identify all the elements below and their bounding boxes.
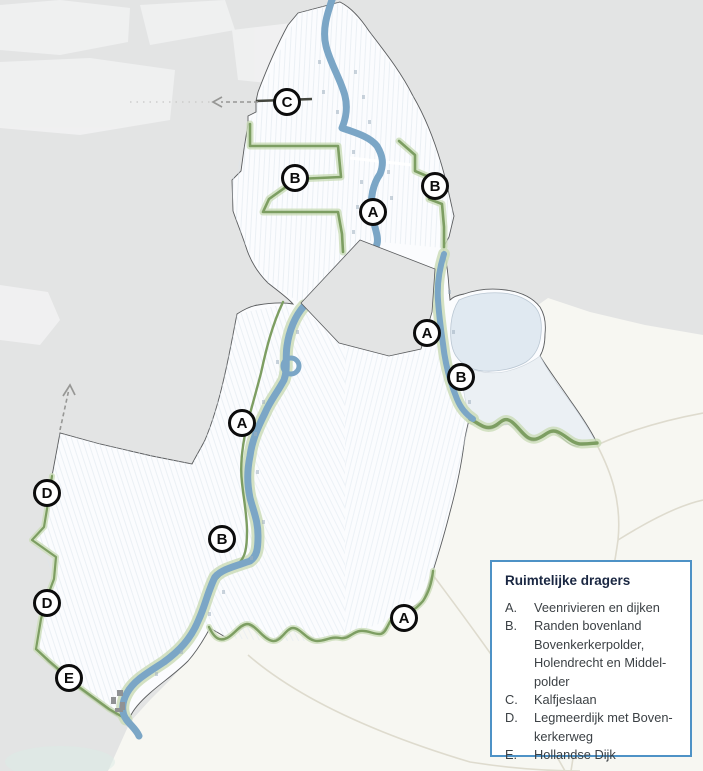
legend-item: A. Veenrivieren en dijken xyxy=(505,599,682,617)
legend-title: Ruimtelijke dragers xyxy=(505,573,682,588)
legend-item-label: Kalfjeslaan xyxy=(534,691,682,709)
legend-item-letter: B. xyxy=(505,617,534,635)
lake xyxy=(451,293,542,371)
legend-item-letter: C. xyxy=(505,691,534,709)
map-marker-a-west: A xyxy=(228,409,256,437)
legend-item-label: Hollandse Dijk xyxy=(534,746,682,764)
legend-item-letter: D. xyxy=(505,709,534,727)
map-marker-e: E xyxy=(55,664,83,692)
map-marker-c: C xyxy=(273,88,301,116)
map-marker-a-north: A xyxy=(359,198,387,226)
map-marker-d-north: D xyxy=(33,479,61,507)
up-arrow-icon xyxy=(63,385,75,396)
legend: Ruimtelijke dragers A. Veenrivieren en d… xyxy=(490,560,692,757)
water-wash xyxy=(5,746,115,771)
map-marker-d-south: D xyxy=(33,589,61,617)
west-arrow-icon xyxy=(213,97,222,107)
legend-item: C. Kalfjeslaan xyxy=(505,691,682,709)
map-canvas: C B A B A B A D B D A E Ruimtelijke drag… xyxy=(0,0,703,771)
legend-item-label: Legmeerdijk met Boven- kerkerweg xyxy=(534,709,682,746)
legend-item-letter: E. xyxy=(505,746,534,764)
legend-item-letter: A. xyxy=(505,599,534,617)
map-marker-b-mid: B xyxy=(447,363,475,391)
legend-item: B. Randen bovenland Bovenkerkerpolder, H… xyxy=(505,617,682,691)
map-marker-b-northeast: B xyxy=(421,172,449,200)
legend-item: D. Legmeerdijk met Boven- kerkerweg xyxy=(505,709,682,746)
legend-item-label: Randen bovenland Bovenkerkerpolder, Hole… xyxy=(534,617,682,691)
north-arrow xyxy=(60,385,75,430)
map-marker-b-southwest: B xyxy=(208,525,236,553)
map-marker-b-northwest: B xyxy=(281,164,309,192)
map-marker-a-south: A xyxy=(390,604,418,632)
legend-item: E. Hollandse Dijk xyxy=(505,746,682,764)
map-marker-a-mid: A xyxy=(413,319,441,347)
legend-item-label: Veenrivieren en dijken xyxy=(534,599,682,617)
